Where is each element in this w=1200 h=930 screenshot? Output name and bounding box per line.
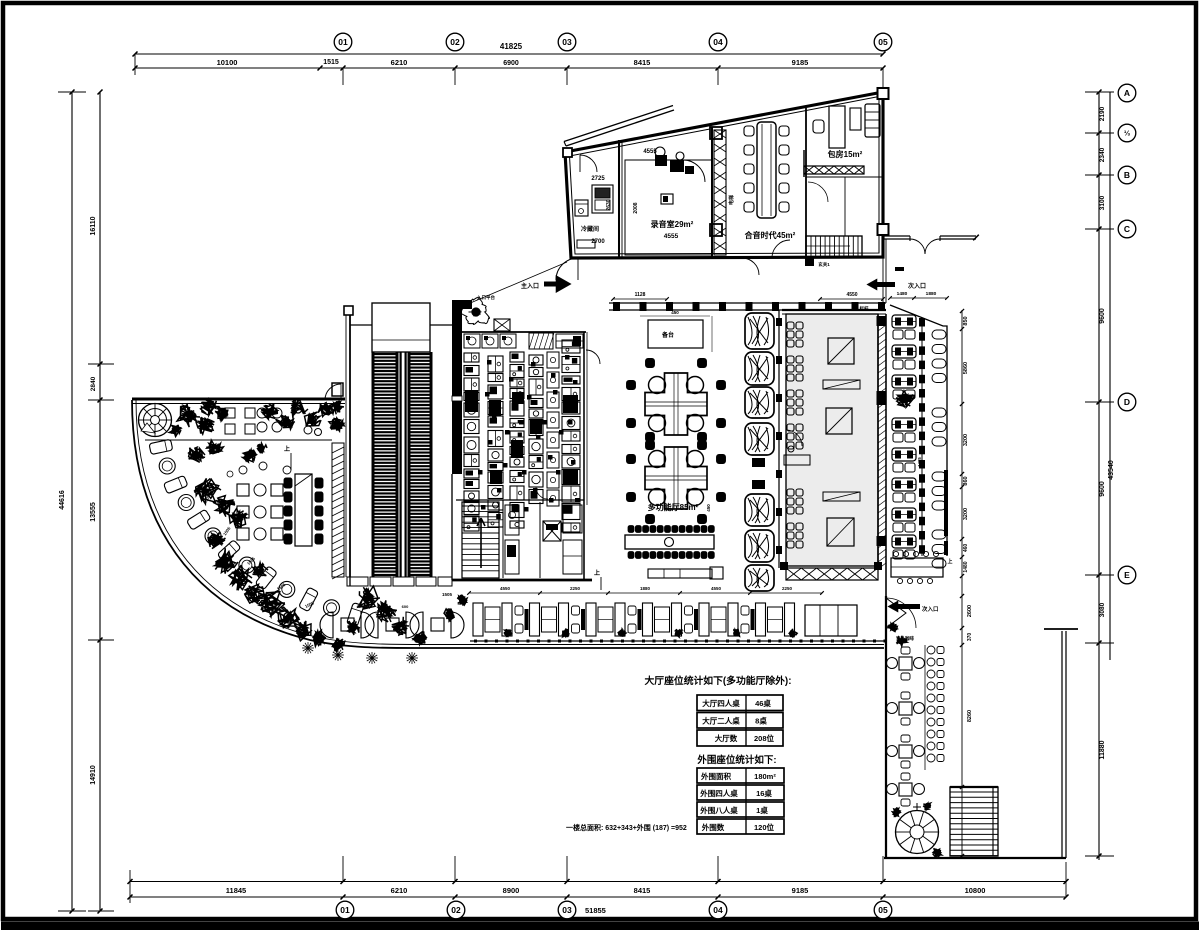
svg-text:8桌: 8桌 <box>755 716 767 726</box>
svg-text:6210: 6210 <box>391 886 408 895</box>
svg-text:05: 05 <box>878 905 888 915</box>
svg-text:主入口: 主入口 <box>521 282 539 290</box>
svg-text:入口平台: 入口平台 <box>476 294 495 301</box>
svg-text:2600: 2600 <box>967 605 973 617</box>
svg-text:11845: 11845 <box>226 886 246 895</box>
svg-text:2700: 2700 <box>591 239 605 245</box>
svg-text:6210: 6210 <box>391 58 408 67</box>
svg-text:3080: 3080 <box>1099 602 1106 617</box>
svg-text:8415: 8415 <box>634 886 651 895</box>
svg-text:3100: 3100 <box>1099 195 1106 210</box>
svg-text:外围数: 外围数 <box>702 822 725 832</box>
svg-text:860: 860 <box>963 476 969 485</box>
svg-text:9185: 9185 <box>792 886 809 895</box>
svg-text:大厅二人桌: 大厅二人桌 <box>702 716 740 726</box>
svg-text:D: D <box>1124 397 1130 407</box>
svg-text:4550: 4550 <box>500 586 511 591</box>
svg-text:03: 03 <box>562 905 572 915</box>
svg-text:01: 01 <box>338 37 348 47</box>
svg-text:2340: 2340 <box>1099 147 1106 162</box>
svg-text:46桌: 46桌 <box>755 698 771 708</box>
svg-text:录音室29m²: 录音室29m² <box>651 219 694 229</box>
svg-text:450: 450 <box>706 504 711 512</box>
svg-text:2840: 2840 <box>90 376 97 391</box>
svg-text:外围八人桌: 外围八人桌 <box>700 805 738 815</box>
svg-text:9185: 9185 <box>792 58 809 67</box>
svg-text:03: 03 <box>562 37 572 47</box>
svg-text:450: 450 <box>671 310 679 315</box>
svg-text:4555: 4555 <box>643 149 657 155</box>
svg-text:冷藏间: 冷藏间 <box>581 225 599 233</box>
svg-text:2190: 2190 <box>1099 106 1106 121</box>
svg-text:1515: 1515 <box>323 59 339 66</box>
svg-text:9600: 9600 <box>1099 481 1106 497</box>
svg-text:120位: 120位 <box>754 822 775 832</box>
svg-text:02: 02 <box>450 37 460 47</box>
svg-text:4550: 4550 <box>846 292 857 298</box>
svg-text:9600: 9600 <box>1099 308 1106 324</box>
svg-text:600: 600 <box>402 604 409 609</box>
svg-text:玄关1: 玄关1 <box>818 261 830 268</box>
svg-text:5860: 5860 <box>963 362 969 374</box>
svg-text:⅓: ⅓ <box>1124 129 1130 138</box>
svg-text:850: 850 <box>963 316 969 325</box>
svg-text:大厅四人桌: 大厅四人桌 <box>702 698 740 708</box>
svg-text:41825: 41825 <box>500 42 523 51</box>
svg-text:14910: 14910 <box>90 765 97 785</box>
svg-text:1505: 1505 <box>442 592 453 597</box>
svg-text:E: E <box>1124 570 1130 580</box>
svg-text:4550: 4550 <box>711 586 722 591</box>
svg-text:2250: 2250 <box>570 586 581 591</box>
svg-text:44616: 44616 <box>59 490 66 510</box>
svg-text:04: 04 <box>713 37 723 47</box>
svg-text:室外咖啡: 室外咖啡 <box>896 635 914 642</box>
svg-text:电梯: 电梯 <box>728 195 735 205</box>
svg-text:1880: 1880 <box>926 291 937 297</box>
svg-text:1480: 1480 <box>897 291 908 297</box>
svg-text:1880: 1880 <box>640 586 651 591</box>
svg-text:上: 上 <box>284 445 290 453</box>
svg-text:180m²: 180m² <box>754 772 776 781</box>
svg-text:外围四人桌: 外围四人桌 <box>700 788 738 798</box>
svg-text:16110: 16110 <box>90 216 97 235</box>
svg-text:1480: 1480 <box>963 561 969 572</box>
svg-text:8260: 8260 <box>967 710 973 722</box>
svg-text:上: 上 <box>947 558 952 565</box>
svg-text:外围面积: 外围面积 <box>701 771 731 781</box>
svg-text:51855: 51855 <box>585 906 606 915</box>
svg-text:大厅数: 大厅数 <box>715 733 738 743</box>
svg-text:8900: 8900 <box>503 886 520 895</box>
svg-text:栏杆: 栏杆 <box>860 305 869 312</box>
svg-text:2250: 2250 <box>782 586 793 591</box>
svg-text:370: 370 <box>967 633 973 642</box>
svg-text:6900: 6900 <box>503 60 519 67</box>
svg-text:2725: 2725 <box>591 176 605 182</box>
svg-text:04: 04 <box>713 905 723 915</box>
svg-text:包房15m²: 包房15m² <box>827 149 863 159</box>
svg-text:4555: 4555 <box>664 233 679 240</box>
svg-text:一楼总面积: 632+343+外围 (187) =952: 一楼总面积: 632+343+外围 (187) =952 <box>566 823 687 832</box>
svg-text:10800: 10800 <box>965 886 986 895</box>
svg-text:A: A <box>1124 88 1130 98</box>
svg-text:600: 600 <box>357 604 364 609</box>
svg-text:大厅座位统计如下(多功能厅除外):: 大厅座位统计如下(多功能厅除外): <box>645 674 792 687</box>
svg-text:460: 460 <box>963 544 969 553</box>
svg-text:合音时代45m²: 合音时代45m² <box>744 230 796 240</box>
svg-text:2630: 2630 <box>606 199 612 210</box>
svg-text:3200: 3200 <box>963 508 969 520</box>
svg-text:1128: 1128 <box>635 292 646 298</box>
svg-text:11880: 11880 <box>1099 740 1106 759</box>
svg-text:多功能厅85m²: 多功能厅85m² <box>648 502 699 512</box>
svg-text:次入口: 次入口 <box>908 282 926 290</box>
svg-text:8415: 8415 <box>634 58 651 67</box>
svg-text:13555: 13555 <box>90 502 97 522</box>
svg-text:2008: 2008 <box>633 202 639 213</box>
svg-text:C: C <box>1124 224 1130 234</box>
svg-text:208位: 208位 <box>754 733 775 743</box>
svg-text:3200: 3200 <box>963 434 969 446</box>
svg-text:01: 01 <box>340 905 350 915</box>
svg-text:43540: 43540 <box>1108 460 1115 480</box>
svg-text:次入口: 次入口 <box>922 605 939 613</box>
svg-text:外围座位统计如下:: 外围座位统计如下: <box>696 754 776 766</box>
svg-text:1桌: 1桌 <box>756 805 768 815</box>
svg-text:02: 02 <box>451 905 461 915</box>
svg-text:05: 05 <box>878 37 888 47</box>
svg-text:备台: 备台 <box>661 331 674 339</box>
svg-text:10100: 10100 <box>217 58 238 67</box>
svg-text:上: 上 <box>594 569 600 577</box>
svg-text:16桌: 16桌 <box>756 788 772 798</box>
svg-text:B: B <box>1124 170 1130 180</box>
svg-text:1485: 1485 <box>917 457 922 467</box>
